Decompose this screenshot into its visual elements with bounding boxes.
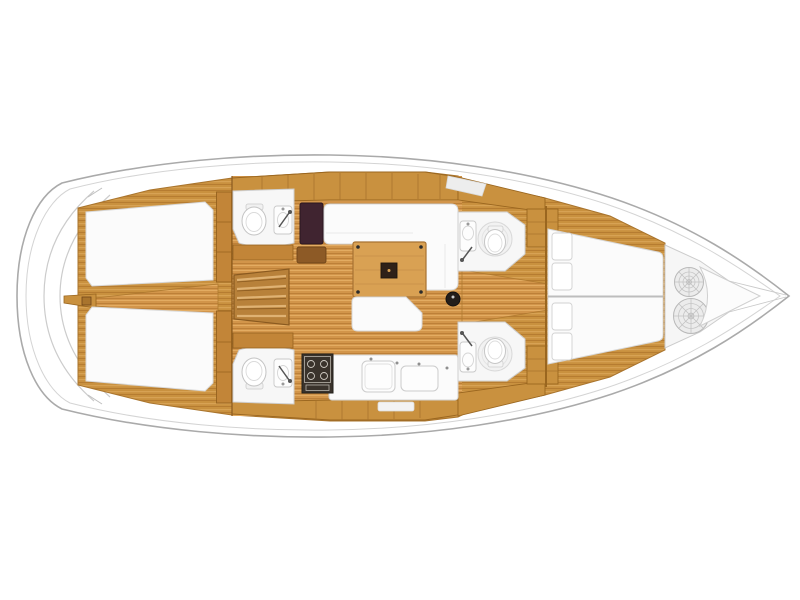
port-aft-head	[233, 189, 294, 260]
yacht-floor-plan	[0, 0, 800, 600]
faucet-icon	[467, 368, 470, 371]
starboard-aft-berth	[86, 307, 213, 391]
starboard-aft-head	[233, 333, 294, 404]
forward-cabin	[548, 229, 663, 364]
under-head-locker	[233, 333, 293, 348]
table-center-dot	[388, 269, 391, 272]
mast-post	[446, 292, 460, 306]
shower-head-icon	[460, 331, 464, 335]
port-forward-head	[458, 212, 525, 271]
yacht-floor-plan-canvas	[0, 0, 800, 600]
faucet-icon	[282, 208, 285, 211]
nav-chart-table	[300, 203, 323, 244]
bottom-deck-hatch	[378, 402, 414, 411]
starboard-forward-head	[458, 322, 525, 381]
under-head-locker	[233, 245, 293, 260]
rope-coil-upper	[675, 268, 704, 297]
shower-head-icon	[288, 210, 292, 214]
galley-sink-left	[362, 361, 395, 392]
companionway-stairs	[234, 269, 289, 325]
faucet-icon	[282, 383, 285, 386]
starboard-wardrobe	[217, 311, 232, 403]
nav-seat	[297, 247, 326, 263]
stove	[302, 354, 333, 393]
shower-head-icon	[460, 258, 464, 262]
port-aft-berth	[86, 202, 213, 286]
galley	[302, 354, 458, 400]
rope-coil-lower	[674, 299, 709, 334]
port-wardrobe	[217, 192, 232, 282]
faucet-icon	[467, 223, 470, 226]
navigation-station	[297, 203, 326, 263]
corridor-end-fitting	[82, 297, 91, 305]
mast-post-highlight	[452, 296, 455, 299]
shower-head-icon	[288, 379, 292, 383]
bench-settee	[352, 297, 422, 331]
galley-sink-right	[401, 366, 438, 391]
